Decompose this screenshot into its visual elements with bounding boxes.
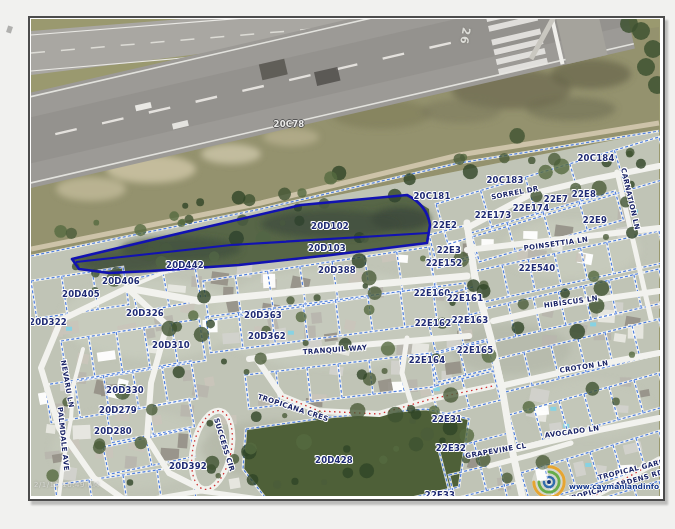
- timestamp-overlay: 2/1/11 10:49 AM: [34, 481, 99, 489]
- lands-survey-swirl-logo-icon: [530, 463, 568, 496]
- map-frame: 20C7820C18120C18320C18420D10220D10320D44…: [28, 16, 665, 501]
- aerial-map-viewport[interactable]: 20C7820C18120C18320C18420D10220D10320D44…: [31, 19, 660, 496]
- scan-smudge: [6, 25, 13, 33]
- watermark: www.caymanlandinfo.ky: [530, 467, 658, 495]
- aerial-imagery-layer: [31, 19, 660, 496]
- watermark-url: www.caymanlandinfo.ky: [569, 482, 660, 491]
